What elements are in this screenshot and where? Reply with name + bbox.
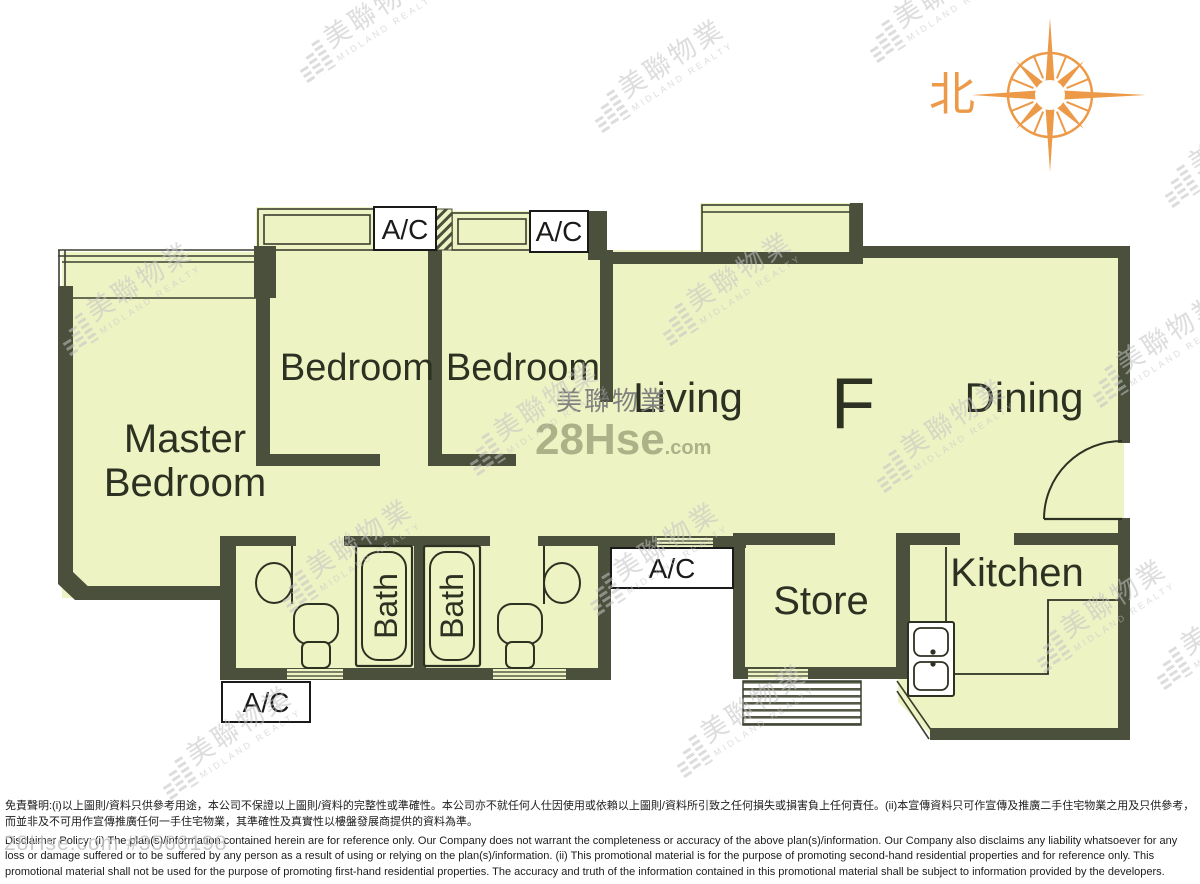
wall-segment: [344, 536, 490, 546]
wall-segment: [442, 454, 516, 466]
kitchen-sink-tap-dot: [930, 661, 935, 666]
wall-segment: [733, 533, 835, 545]
wall-segment: [1014, 533, 1124, 545]
wall-segment: [256, 454, 380, 466]
toilet-west-tank: [302, 642, 330, 668]
wall-segment: [856, 246, 1130, 258]
bay-window-east-floor: [450, 211, 534, 252]
toilet-east-bowl: [498, 604, 542, 644]
wall-segment: [930, 728, 1130, 740]
wall-segment: [588, 211, 607, 260]
wall-hatched-segment: [436, 209, 452, 250]
bath-west-louver: [287, 669, 343, 679]
store-platform-louvers: [743, 681, 861, 725]
bath-west-label: Bath: [368, 573, 404, 639]
unit-letter-label: F: [831, 364, 875, 444]
compass: 北: [929, 18, 1146, 172]
wall-segment: [1118, 518, 1130, 740]
toilet-west-bowl: [294, 604, 338, 644]
compass-north-label: 北: [929, 68, 975, 120]
bath-east-label: Bath: [434, 573, 470, 639]
basin-east: [544, 563, 580, 603]
kitchen-label: Kitchen: [950, 551, 1083, 595]
living-south-window: [657, 538, 713, 547]
ac-label-bottom-west: A/C: [243, 687, 290, 718]
master-bedroom-label-line1: Master: [124, 417, 246, 461]
bay-window-west-floor: [256, 207, 378, 252]
wall-segment: [538, 536, 600, 546]
bath-east-louver: [493, 669, 566, 679]
ac-label-top-west: A/C: [382, 214, 429, 245]
compass-center: [1035, 80, 1065, 110]
wall-segment: [600, 250, 613, 402]
disclaimer-chinese: 免責聲明:(i)以上圖則/資料只供參考用途，本公司不保證以上圖則/資料的完整性或…: [5, 799, 1195, 831]
living-label: Living: [633, 374, 743, 421]
floorplan-page: { "compass": { "north_label": "北" }, "un…: [0, 0, 1200, 884]
basin-west: [256, 563, 292, 603]
toilet-east-tank: [506, 642, 534, 668]
bedroom-west-label: Bedroom: [280, 347, 434, 389]
store-louver-window: [748, 669, 808, 679]
wall-segment: [1118, 250, 1130, 443]
ac-label-bottom-middle: A/C: [649, 553, 696, 584]
kitchen-sink-tap-dot: [930, 649, 935, 654]
bedroom-east-label: Bedroom: [446, 347, 600, 389]
disclaimer: 免責聲明:(i)以上圖則/資料只供參考用途，本公司不保證以上圖則/資料的完整性或…: [5, 799, 1195, 881]
wall-segment: [220, 536, 236, 680]
floor-plan: Master Bedroom Bedroom Bedroom Living F …: [0, 0, 1200, 884]
wall-segment: [256, 252, 270, 463]
wall-segment: [58, 286, 73, 578]
store-label: Store: [773, 579, 869, 623]
wall-segment: [598, 536, 611, 680]
wall-segment: [733, 533, 745, 679]
disclaimer-english: Disclaimer Policy: (i) The plan(s)/infor…: [5, 834, 1195, 881]
wall-segment: [80, 586, 230, 600]
wall-segment: [600, 252, 858, 264]
dining-label: Dining: [964, 374, 1083, 421]
ac-label-top-east: A/C: [536, 216, 583, 247]
master-bedroom-label-line2: Bedroom: [104, 461, 266, 505]
